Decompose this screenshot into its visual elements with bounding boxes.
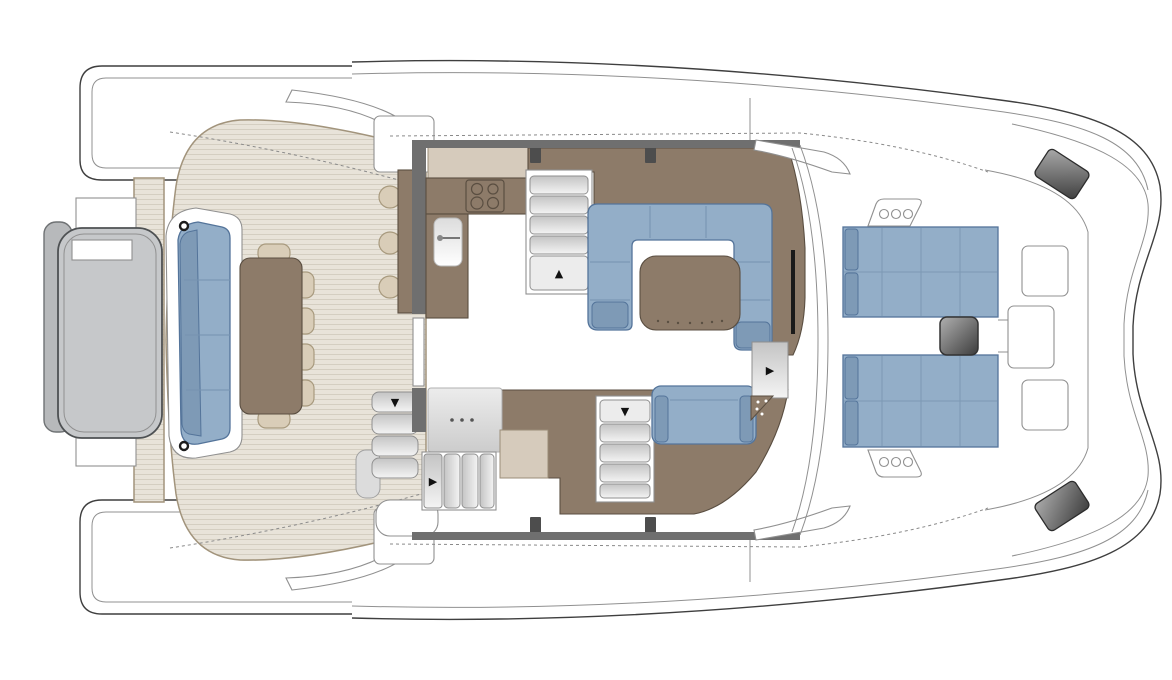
- portlight-icon: [892, 458, 901, 467]
- sunpad-bottom: [843, 355, 998, 447]
- stair-tread: [444, 454, 460, 508]
- console-knob-icon: [450, 418, 454, 422]
- stair-tread: [372, 458, 418, 478]
- stair-tread: [462, 454, 478, 508]
- yacht-floor-plan: ▼: [0, 0, 1172, 680]
- portlight-icon: [904, 210, 913, 219]
- salon-window-band-bottom: [412, 532, 800, 540]
- bow-seat: [1022, 380, 1068, 430]
- salon-dinette: [588, 204, 772, 350]
- portlight-icon: [880, 210, 889, 219]
- helm-bench: [652, 386, 756, 444]
- stairs-right-arrow-icon: ▶: [429, 475, 438, 488]
- aft-window-frame-upper: [412, 146, 426, 314]
- galley-counter-beige: [428, 146, 536, 178]
- sunpad-headrest: [845, 273, 858, 315]
- swim-platform-notch: [72, 240, 132, 260]
- companionway-starboard: ▲: [526, 170, 592, 294]
- dining-table: [240, 258, 302, 414]
- stair-tread: [530, 176, 588, 194]
- sliding-door-track: [791, 250, 795, 334]
- sunpad-headrest: [845, 229, 858, 270]
- exterior-bar-counter: [398, 170, 413, 313]
- portlight-icon: [880, 458, 889, 467]
- bow-seat: [1008, 306, 1054, 368]
- stairs-down-arrow-icon: ▼: [621, 405, 630, 418]
- stair-tread: [480, 454, 494, 508]
- aft-window-frame-lower: [412, 388, 426, 432]
- aft-bulkhead: [412, 146, 426, 432]
- transom-sofa: [166, 208, 242, 458]
- stair-tread: [530, 216, 588, 234]
- stairs-down-arrow-icon: ▼: [391, 396, 400, 409]
- step-right-arrow-icon: ▶: [766, 364, 775, 377]
- settee-corner-cushion: [592, 302, 628, 328]
- transom-area: [44, 178, 164, 502]
- sliding-door-opening: [413, 318, 424, 386]
- stair-tread: [600, 464, 650, 482]
- stair-tread: [530, 196, 588, 214]
- stair-tread: [372, 414, 418, 434]
- sunpad-top: [843, 227, 998, 317]
- salon-window-band-top: [412, 140, 800, 148]
- console-knob-icon: [460, 418, 464, 422]
- faucet-knob-icon: [437, 235, 443, 241]
- stair-tread: [600, 444, 650, 462]
- galley-window-bar: [379, 170, 413, 313]
- galley-rug: [500, 430, 548, 478]
- stair-tread: [372, 436, 418, 456]
- stair-tread: [600, 484, 650, 498]
- salon-table: [640, 256, 740, 330]
- window-mullion-post: [645, 146, 656, 163]
- stair-tread: [530, 236, 588, 254]
- deck-fitting-ring-top: [180, 222, 188, 230]
- companionway-port-aft: ▶: [422, 452, 496, 510]
- stair-tread: [600, 424, 650, 442]
- galley-sink: [434, 218, 462, 266]
- console-knob-icon: [470, 418, 474, 422]
- portlight-icon: [892, 210, 901, 219]
- window-mullion-post: [530, 146, 541, 163]
- sunpad-headrest: [845, 357, 858, 399]
- cabinet-console: [428, 388, 502, 452]
- sunpad-headrest: [845, 401, 858, 445]
- window-mullion-post: [530, 517, 541, 534]
- floor-plan-drawing: ▼: [0, 0, 1172, 680]
- bench-armrest: [655, 396, 668, 442]
- window-mullion-post: [645, 517, 656, 534]
- companionway-center: ▼: [596, 396, 654, 502]
- stairs-up-arrow-icon: ▲: [555, 267, 564, 280]
- foredeck-table: [940, 317, 978, 355]
- portlight-icon: [904, 458, 913, 467]
- deck-fitting-ring-bottom: [180, 442, 188, 450]
- transom-sofa-backrest: [180, 230, 201, 436]
- bow-seat: [1022, 246, 1068, 296]
- aft-deck: ▼: [166, 90, 438, 590]
